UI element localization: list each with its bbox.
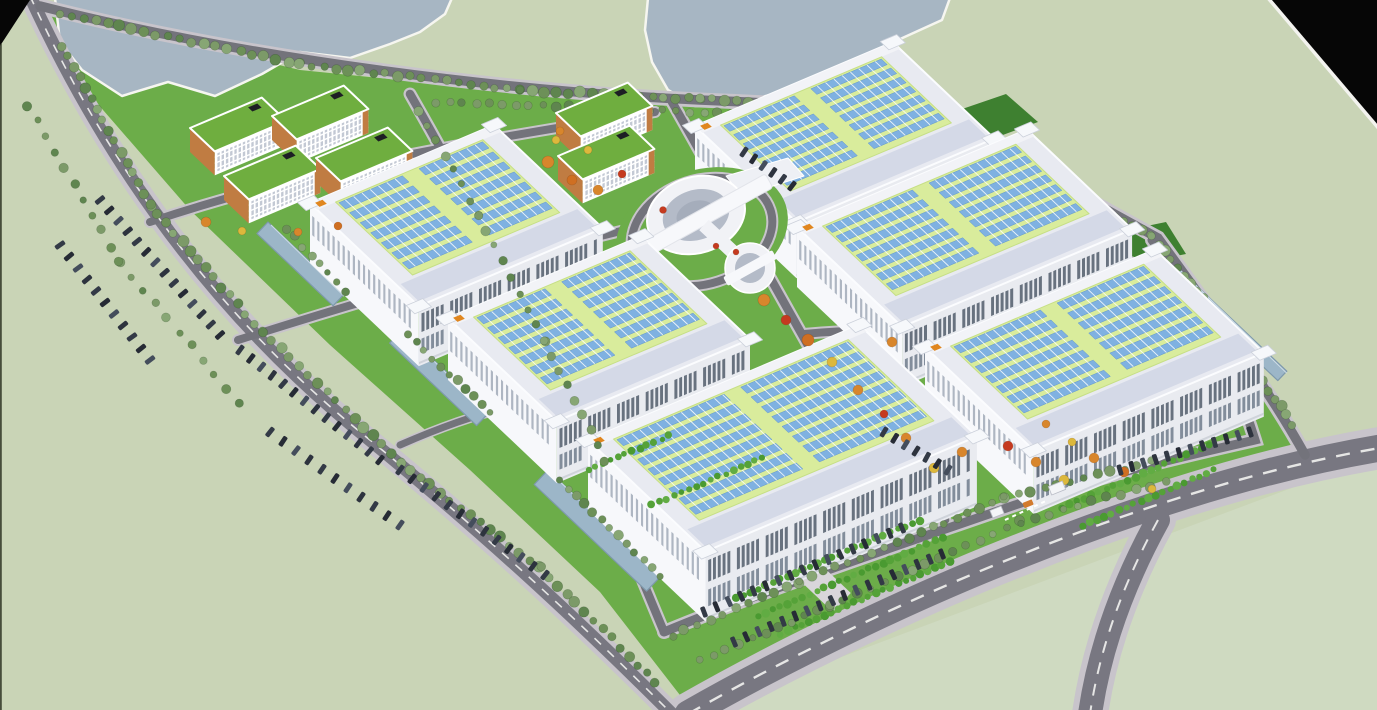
hedge-shrub	[1206, 441, 1213, 448]
hedge-shrub	[1155, 464, 1162, 471]
street-tree	[71, 180, 80, 189]
street-tree	[599, 624, 608, 633]
street-tree	[1004, 524, 1011, 531]
street-tree	[974, 503, 985, 514]
hedge-shrub	[859, 597, 865, 603]
window-strip	[1190, 419, 1193, 436]
autumn-tree-orange	[294, 228, 302, 236]
window-strip	[622, 401, 625, 421]
window-strip	[1238, 372, 1241, 393]
window-strip	[875, 312, 877, 333]
hedge-shrub	[946, 557, 955, 566]
window-strip	[1199, 415, 1202, 432]
hedge-shrub	[859, 569, 865, 575]
window-strip	[1068, 264, 1071, 284]
street-tree	[185, 246, 196, 257]
window-strip	[727, 580, 730, 598]
street-tree	[114, 257, 123, 266]
street-tree	[161, 218, 170, 227]
street-tree	[962, 541, 970, 549]
hedge-shrub	[1139, 469, 1148, 478]
street-tree	[284, 57, 295, 68]
street-tree	[623, 540, 631, 548]
window-strip	[948, 487, 951, 505]
street-tree	[370, 70, 378, 78]
hedge-shrub	[900, 550, 908, 558]
window-strip	[651, 513, 653, 538]
campus-3d-scene	[0, 0, 1377, 710]
window-strip	[476, 355, 478, 377]
window-strip	[697, 138, 699, 158]
street-tree	[630, 549, 638, 557]
window-strip	[363, 264, 365, 285]
window-strip	[661, 522, 663, 547]
street-tree	[600, 457, 609, 466]
hedge-shrub	[724, 472, 730, 478]
window-strip	[368, 269, 370, 290]
hedge-shrub	[1170, 457, 1176, 463]
window-strip	[1020, 284, 1023, 304]
autumn-tree-yellow	[238, 227, 246, 235]
street-tree	[929, 522, 937, 530]
street-tree	[650, 93, 657, 100]
window-strip	[991, 296, 994, 316]
window-strip	[660, 385, 663, 406]
window-strip	[491, 370, 493, 392]
street-tree	[569, 596, 580, 607]
window-strip	[1218, 407, 1221, 424]
hedge-shrub	[1147, 466, 1155, 474]
window-strip	[820, 259, 822, 280]
street-tree	[481, 226, 491, 236]
window-strip	[1051, 451, 1054, 472]
street-tree	[572, 491, 581, 500]
window-strip	[626, 488, 628, 513]
window-strip	[564, 425, 567, 446]
window-strip	[845, 283, 847, 304]
hedge-shrub	[730, 466, 738, 474]
street-tree	[732, 96, 741, 105]
street-tree	[616, 644, 625, 653]
street-tree	[796, 578, 803, 585]
window-strip	[1185, 394, 1188, 415]
street-tree	[247, 50, 256, 59]
street-tree	[1015, 490, 1023, 498]
street-tree	[199, 38, 210, 49]
hedge-shrub	[844, 576, 851, 583]
window-strip	[1171, 427, 1174, 444]
street-tree	[579, 498, 589, 508]
window-strip	[996, 294, 999, 314]
autumn-tree-orange	[1042, 420, 1050, 428]
street-tree	[659, 106, 666, 113]
street-tree	[807, 571, 817, 581]
window-strip	[1161, 431, 1164, 448]
window-strip	[1180, 423, 1183, 440]
window-strip	[943, 489, 946, 507]
window-strip	[1087, 256, 1090, 276]
window-strip	[919, 470, 922, 493]
street-tree	[455, 79, 462, 86]
street-tree	[277, 343, 288, 354]
street-tree	[953, 514, 962, 523]
window-strip	[723, 553, 726, 576]
street-tree	[453, 375, 463, 385]
hedge-shrub	[738, 463, 745, 470]
street-tree	[948, 547, 957, 556]
autumn-tree-yellow	[584, 146, 592, 154]
window-strip	[909, 474, 912, 497]
hedge-shrub	[1211, 466, 1217, 472]
window-strip	[809, 250, 811, 271]
hedge-shrub	[642, 441, 650, 449]
window-strip	[450, 331, 452, 353]
window-strip	[1075, 467, 1078, 484]
street-tree	[282, 225, 291, 234]
window-strip	[1096, 252, 1099, 272]
street-tree	[1132, 484, 1142, 494]
hedge-shrub	[1079, 523, 1086, 530]
window-strip	[516, 394, 518, 416]
street-tree	[532, 320, 540, 328]
street-tree	[989, 531, 996, 538]
window-strip	[426, 310, 429, 330]
window-strip	[842, 502, 845, 525]
window-strip	[833, 536, 836, 554]
window-strip	[756, 539, 759, 562]
street-tree	[696, 94, 705, 103]
window-strip	[1137, 414, 1140, 435]
window-strip	[481, 360, 483, 382]
street-tree	[525, 307, 532, 314]
window-strip	[1039, 276, 1042, 296]
window-strip	[835, 274, 837, 295]
street-tree	[1086, 496, 1096, 506]
window-strip	[751, 541, 754, 564]
window-strip	[526, 404, 528, 426]
street-tree	[270, 54, 281, 65]
window-strip	[1137, 441, 1140, 458]
street-tree	[707, 616, 717, 626]
street-tree	[176, 35, 184, 43]
window-strip	[794, 552, 797, 570]
hedge-shrub	[650, 439, 657, 446]
window-strip	[794, 522, 797, 545]
street-tree	[298, 244, 306, 252]
window-strip	[460, 341, 462, 363]
window-strip	[598, 411, 601, 432]
window-strip	[671, 532, 673, 556]
hedge-shrub	[815, 588, 821, 594]
window-strip	[962, 308, 965, 328]
window-strip	[471, 351, 473, 373]
hedge-shrub	[916, 517, 925, 526]
hedge-shrub	[615, 453, 622, 460]
window-strip	[972, 304, 975, 324]
window-strip	[1247, 394, 1250, 411]
window-strip	[799, 240, 801, 261]
street-tree	[110, 137, 118, 145]
autumn-tree-amber	[802, 334, 814, 346]
street-tree	[694, 622, 701, 629]
window-strip	[804, 518, 807, 541]
tower-trim-strip	[649, 149, 655, 175]
window-strip	[1001, 292, 1004, 312]
window-strip	[1185, 421, 1188, 438]
street-tree	[893, 538, 902, 547]
window-strip	[718, 361, 721, 382]
hedge-shrub	[879, 532, 887, 540]
window-strip	[1077, 260, 1080, 280]
street-tree	[68, 13, 76, 21]
window-strip	[890, 482, 893, 505]
window-strip	[486, 365, 488, 387]
street-tree	[905, 534, 915, 544]
window-strip	[766, 535, 769, 558]
street-tree	[177, 330, 184, 337]
street-tree	[1288, 421, 1296, 429]
window-strip	[852, 498, 855, 521]
street-tree	[342, 65, 353, 76]
street-tree	[757, 592, 767, 602]
window-strip	[928, 495, 931, 513]
window-strip	[924, 497, 927, 515]
street-tree	[538, 87, 549, 98]
window-strip	[1209, 384, 1212, 405]
window-strip	[537, 413, 539, 435]
street-tree	[267, 336, 276, 345]
window-strip	[1005, 290, 1008, 310]
street-tree	[1080, 475, 1087, 482]
window-strip	[383, 283, 385, 304]
window-strip	[1037, 484, 1040, 501]
window-strip	[718, 555, 721, 578]
hedge-shrub	[783, 600, 792, 609]
window-strip	[857, 496, 860, 519]
window-strip	[560, 454, 563, 470]
street-tree	[963, 509, 971, 517]
window-strip	[914, 472, 917, 495]
window-strip	[1209, 411, 1212, 428]
window-strip	[1166, 429, 1169, 446]
window-strip	[1128, 445, 1131, 462]
window-strip	[317, 221, 319, 242]
window-strip	[677, 537, 679, 561]
window-strip	[953, 312, 956, 332]
window-strip	[327, 230, 329, 251]
window-strip	[1024, 452, 1026, 475]
street-tree	[478, 400, 487, 409]
window-strip	[511, 389, 513, 411]
hedge-shrub	[922, 540, 930, 548]
street-tree	[487, 409, 493, 415]
window-strip	[373, 274, 375, 295]
street-tree	[429, 356, 435, 362]
street-tree	[420, 347, 427, 354]
hedge-shrub	[714, 473, 721, 480]
window-strip	[881, 515, 884, 533]
window-strip	[1025, 282, 1028, 302]
street-tree	[671, 94, 681, 104]
window-strip	[890, 511, 893, 529]
hedge-shrub	[1196, 474, 1202, 480]
hedge-shrub	[1100, 513, 1108, 521]
street-tree	[1148, 232, 1156, 240]
window-strip	[1195, 390, 1198, 411]
window-strip	[542, 418, 544, 440]
street-tree	[417, 74, 425, 82]
window-strip	[938, 491, 941, 509]
window-strip	[1123, 447, 1126, 464]
window-strip	[833, 506, 836, 529]
street-tree	[606, 524, 613, 531]
street-tree	[498, 100, 507, 109]
street-tree	[152, 299, 160, 307]
window-strip	[967, 306, 970, 326]
hedge-shrub	[865, 565, 872, 572]
window-strip	[1156, 406, 1159, 427]
window-strip	[838, 533, 841, 551]
street-tree	[56, 10, 64, 18]
street-tree	[413, 338, 420, 345]
street-tree	[491, 85, 499, 93]
window-strip	[742, 545, 745, 568]
street-tree	[308, 63, 315, 70]
hedge-shrub	[807, 564, 813, 570]
window-strip	[830, 269, 832, 290]
window-strip	[766, 564, 769, 582]
street-tree	[447, 98, 454, 105]
window-strip	[703, 367, 706, 387]
autumn-tree-yellow	[1068, 438, 1076, 446]
hedge-shrub	[880, 587, 886, 593]
hedge-shrub	[628, 447, 636, 455]
hedge-shrub	[647, 501, 655, 509]
street-tree	[294, 59, 304, 69]
street-tree	[670, 633, 678, 641]
tower-trim-strip	[363, 109, 369, 135]
window-strip	[708, 559, 711, 582]
window-strip	[627, 399, 630, 420]
window-strip	[611, 474, 613, 499]
street-tree	[123, 158, 132, 167]
hedge-shrub	[1117, 480, 1124, 487]
window-strip	[1242, 370, 1245, 391]
window-strip	[1242, 396, 1245, 413]
window-strip	[771, 562, 774, 580]
street-tree	[587, 425, 596, 434]
hedge-shrub	[872, 563, 880, 571]
street-tree	[128, 274, 135, 281]
street-tree	[187, 38, 196, 47]
street-tree	[188, 341, 196, 349]
street-tree	[750, 635, 756, 641]
street-tree	[551, 87, 562, 98]
street-tree	[1031, 513, 1041, 523]
street-tree	[556, 477, 563, 484]
street-tree	[209, 272, 218, 281]
street-tree	[782, 582, 792, 592]
window-strip	[1104, 428, 1107, 449]
street-tree	[574, 86, 586, 98]
street-tree	[650, 678, 659, 687]
window-strip	[804, 548, 807, 566]
window-strip	[1180, 396, 1183, 417]
hedge-shrub	[700, 481, 706, 487]
window-strip	[607, 407, 610, 427]
street-tree	[708, 95, 715, 102]
street-tree	[324, 269, 330, 275]
window-strip	[942, 375, 944, 398]
window-strip	[1142, 439, 1145, 456]
window-strip	[1214, 382, 1217, 403]
street-tree	[844, 559, 851, 566]
window-strip	[963, 394, 965, 417]
window-strip	[603, 409, 606, 430]
autumn-tree-red	[660, 207, 667, 214]
hedge-shrub	[1104, 486, 1110, 492]
window-strip	[1132, 443, 1135, 460]
street-tree	[200, 357, 208, 365]
window-strip	[866, 492, 869, 515]
street-tree	[1162, 478, 1170, 486]
window-strip	[741, 350, 744, 371]
street-tree	[1093, 469, 1103, 479]
window-strip	[809, 516, 812, 539]
window-strip	[1092, 254, 1095, 274]
street-tree	[696, 656, 703, 663]
street-tree	[641, 556, 648, 563]
window-strip	[828, 508, 831, 531]
window-strip	[840, 278, 842, 299]
window-strip	[880, 317, 882, 338]
window-strip	[952, 485, 955, 503]
window-strip	[809, 546, 812, 564]
window-strip	[1056, 449, 1059, 470]
hedge-shrub	[660, 437, 665, 442]
street-tree	[295, 361, 304, 370]
street-tree	[1025, 487, 1036, 498]
autumn-tree-red	[781, 315, 791, 325]
window-strip	[953, 385, 955, 408]
window-strip	[866, 521, 869, 539]
window-strip	[1034, 278, 1037, 298]
window-strip	[687, 546, 689, 571]
street-tree	[719, 95, 730, 106]
window-strip	[1156, 433, 1159, 450]
street-tree	[614, 530, 624, 540]
street-tree	[216, 283, 226, 293]
window-strip	[702, 143, 704, 163]
window-strip	[881, 486, 884, 509]
autumn-tree-orange	[593, 185, 603, 195]
window-strip	[501, 379, 503, 401]
street-tree	[414, 106, 424, 116]
street-tree	[417, 474, 425, 482]
window-strip	[998, 428, 1000, 451]
window-strip	[785, 526, 788, 549]
window-strip	[631, 397, 634, 418]
window-strip	[569, 449, 572, 465]
window-strip	[732, 354, 735, 375]
hedge-shrub	[1095, 489, 1101, 495]
street-tree	[563, 89, 573, 99]
street-tree	[467, 198, 474, 205]
hedge-shrub	[886, 556, 895, 565]
street-tree	[579, 607, 589, 617]
window-strip	[646, 391, 649, 412]
street-tree	[210, 371, 217, 378]
